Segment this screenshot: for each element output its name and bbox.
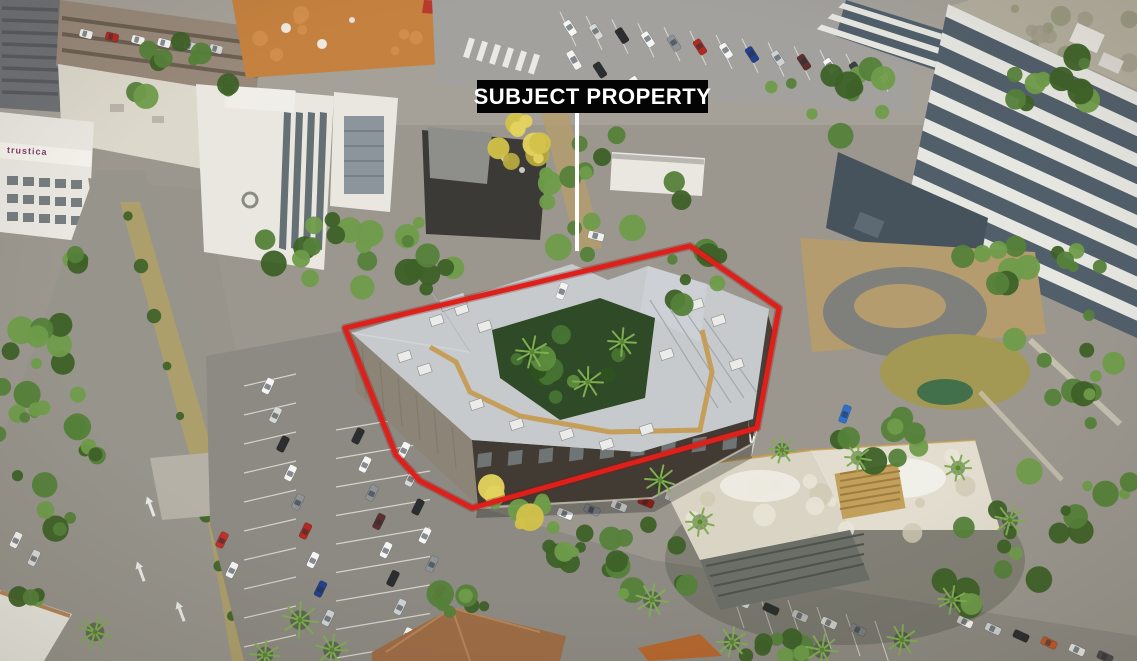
subject-property-label: SUBJECT PROPERTY — [477, 80, 708, 113]
trustica-sign: trustica — [7, 145, 48, 157]
leader-line — [575, 111, 579, 251]
aerial-photograph: SUBJECT PROPERTY trustica — [0, 0, 1137, 661]
